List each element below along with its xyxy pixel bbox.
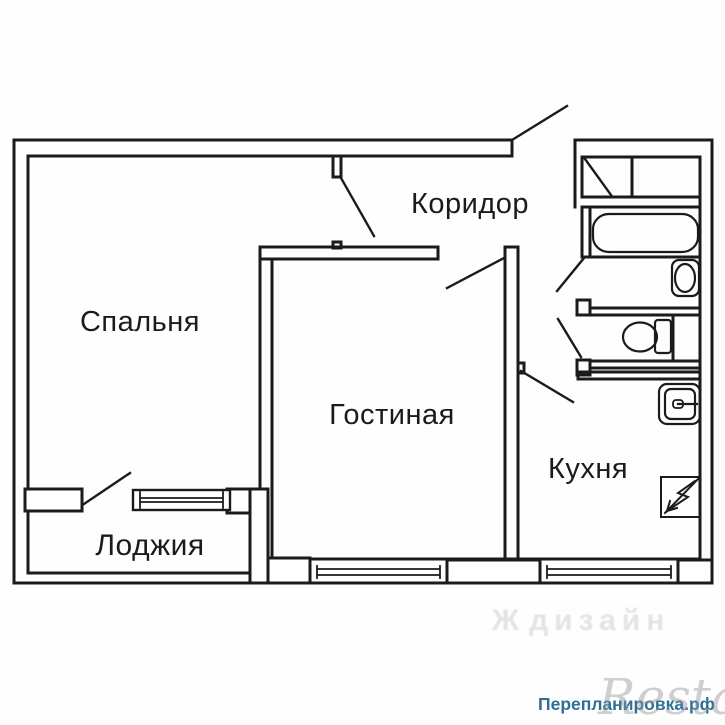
bathtub-icon — [593, 214, 698, 252]
design-watermark-text: дизайн — [529, 604, 670, 637]
balcony-door-icon — [84, 473, 130, 504]
entrance-door-icon — [512, 106, 567, 140]
design-logo-icon: Ж — [492, 604, 519, 637]
windows — [133, 490, 671, 578]
bedroom-door-icon — [341, 178, 374, 236]
room-label-corridor: Коридор — [411, 188, 529, 221]
walls — [14, 140, 712, 583]
washbasin-icon — [672, 260, 699, 296]
room-label-living: Гостиная — [329, 399, 455, 432]
living-door-icon — [447, 258, 504, 288]
toilet-door-icon — [558, 319, 581, 357]
living-room-window-icon — [317, 566, 440, 578]
bathroom-door-icon — [557, 258, 584, 291]
room-label-loggia: Лоджия — [95, 529, 204, 563]
electric-stove-icon — [661, 477, 699, 517]
closet-door-icon — [585, 159, 611, 195]
room-label-bedroom: Спальня — [80, 306, 200, 339]
doors — [84, 106, 611, 504]
kitchen-sink-icon — [659, 384, 700, 424]
room-label-kitchen: Кухня — [548, 453, 628, 486]
loggia-window-icon — [133, 490, 230, 510]
design-watermark: Ждизайн — [492, 604, 670, 638]
brand-watermark: Restate — [598, 668, 725, 725]
kitchen-door-icon — [521, 371, 573, 402]
toilet-icon — [623, 320, 671, 353]
floor-plan-page: Спальня Коридор Гостиная Кухня Лоджия Жд… — [0, 0, 725, 725]
kitchen-window-icon — [547, 566, 671, 578]
